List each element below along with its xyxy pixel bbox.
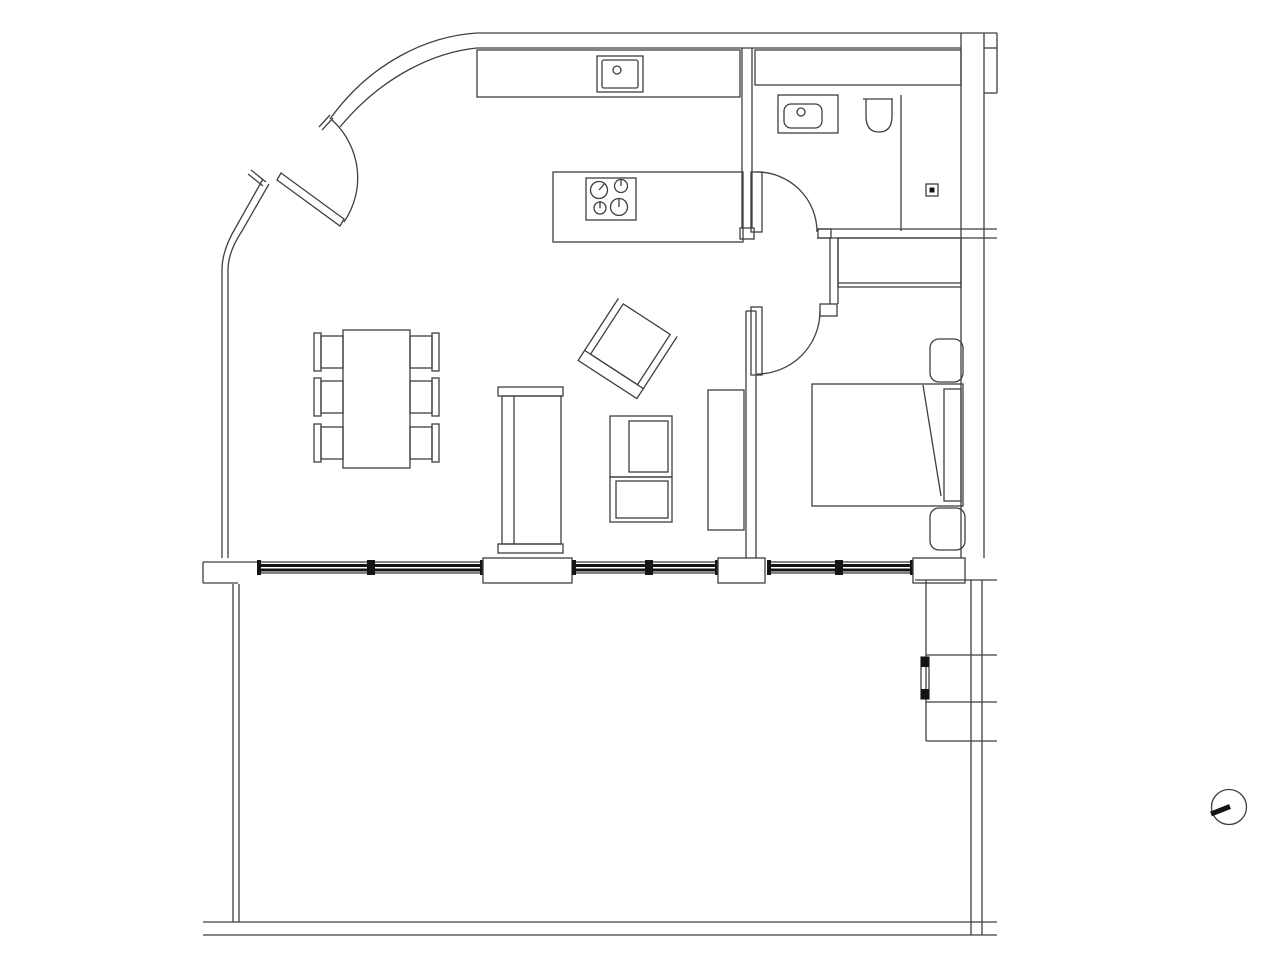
terrace-wall-right: [971, 580, 982, 935]
kitchen: [477, 50, 743, 242]
bedroom: [812, 238, 965, 550]
bathroom-door-leaf: [751, 172, 762, 232]
media-unit: [610, 416, 672, 522]
wall-top-exterior: [477, 33, 997, 48]
terrace-wall-bottom: [203, 922, 997, 935]
dining-chair: [410, 424, 439, 462]
sideboard: [708, 390, 744, 530]
bed-headboard: [944, 389, 961, 501]
floor-plan-page: [0, 0, 1280, 960]
sofa-body: [502, 396, 561, 544]
terrace: [203, 580, 997, 935]
bathroom-shelf: [755, 50, 961, 85]
dining-chair: [314, 378, 343, 416]
window: [649, 560, 719, 575]
kitchen-island: [553, 172, 743, 242]
wall-bathroom-bottom: [817, 229, 997, 238]
window-wall: [257, 558, 965, 583]
toilet: [863, 99, 893, 132]
bedroom-door: [751, 307, 820, 375]
wall-kitchen-bathroom: [740, 48, 754, 239]
wall-pier-corner: [913, 558, 965, 583]
window: [257, 560, 371, 575]
armchair: [578, 298, 677, 398]
dining-chair: [314, 424, 343, 462]
entry-door: [277, 120, 358, 226]
bathroom-door-swing-arc: [757, 172, 817, 232]
bedroom-door-swing-arc: [757, 311, 820, 374]
wall-pier: [483, 558, 572, 583]
terrace-wall-left: [233, 584, 239, 922]
cooktop: [586, 178, 636, 220]
window: [767, 560, 839, 575]
vanity-drain: [797, 108, 805, 116]
sofa-armrest: [498, 544, 563, 553]
bed-outline: [812, 384, 963, 506]
wall-hall-bedroom: [820, 238, 838, 316]
shower-drain: [926, 184, 938, 196]
armchair-backrest: [578, 350, 643, 398]
kitchen-counter: [477, 50, 740, 97]
floor-plan-drawing: [0, 0, 1280, 960]
wall-left-exterior: [203, 170, 269, 583]
nightstand-lower: [930, 508, 965, 550]
sofa: [498, 387, 563, 553]
wall-pier: [718, 558, 765, 583]
bathroom-door: [751, 172, 817, 232]
window: [839, 560, 914, 575]
bathroom: [755, 50, 961, 231]
dining-chair: [314, 333, 343, 371]
stair-structure: [915, 580, 997, 741]
bed-cover-fold: [923, 385, 941, 496]
dining-chair: [410, 378, 439, 416]
dining-table: [343, 330, 410, 468]
wardrobe: [838, 238, 961, 287]
double-bed: [812, 384, 963, 506]
kitchen-sink: [597, 56, 643, 92]
north-marker: [1211, 790, 1247, 825]
sofa-armrest: [498, 387, 563, 396]
nightstand-upper: [930, 339, 963, 382]
armchair-seat: [591, 304, 671, 385]
bathroom-vanity: [778, 95, 838, 133]
doors: [277, 120, 820, 375]
living-dining: [314, 298, 744, 553]
window: [371, 560, 484, 575]
north-marker-needle: [1211, 807, 1230, 815]
entry-door-leaf: [277, 173, 344, 226]
window: [572, 560, 649, 575]
entry-door-swing-arc: [332, 120, 358, 222]
wall-right-exterior: [961, 33, 997, 558]
wall-entry-curve: [319, 33, 477, 130]
walls: [203, 33, 997, 583]
hatch-door-marker: [921, 657, 929, 699]
dining-chair: [410, 333, 439, 371]
sink-drain: [613, 66, 621, 74]
